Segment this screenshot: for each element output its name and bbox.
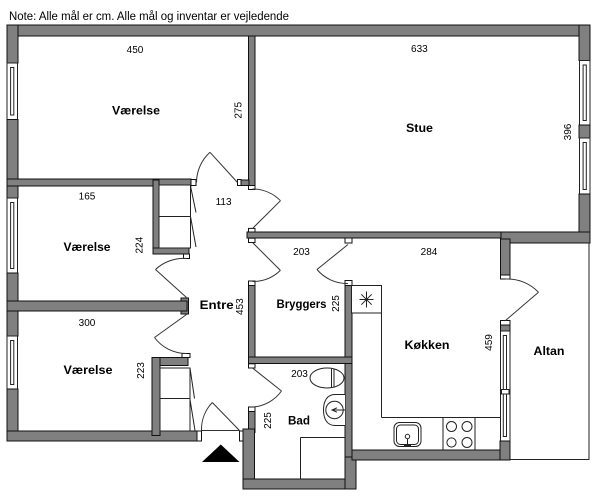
svg-text:225: 225	[331, 295, 342, 312]
svg-text:Entre: Entre	[200, 298, 234, 312]
svg-text:224: 224	[135, 236, 146, 253]
svg-text:Værelse: Værelse	[64, 363, 113, 377]
svg-text:Bad: Bad	[288, 413, 310, 427]
svg-text:275: 275	[234, 102, 245, 119]
svg-text:633: 633	[411, 44, 428, 55]
svg-text:Note: Alle mål er cm. Alle mål: Note: Alle mål er cm. Alle mål og invent…	[9, 9, 289, 23]
svg-text:300: 300	[79, 318, 96, 329]
svg-text:Værelse: Værelse	[64, 240, 111, 254]
svg-text:Stue: Stue	[406, 121, 433, 135]
svg-text:450: 450	[127, 45, 144, 56]
svg-text:Altan: Altan	[534, 344, 565, 358]
svg-text:225: 225	[263, 412, 274, 429]
svg-text:223: 223	[136, 362, 147, 379]
svg-text:Værelse: Værelse	[112, 103, 160, 117]
svg-text:459: 459	[484, 334, 495, 351]
svg-text:203: 203	[293, 247, 310, 258]
svg-text:453: 453	[235, 298, 246, 315]
svg-text:165: 165	[79, 192, 96, 203]
svg-text:Køkken: Køkken	[405, 338, 450, 352]
svg-text:Bryggers: Bryggers	[277, 297, 327, 311]
svg-text:396: 396	[563, 123, 574, 140]
svg-text:203: 203	[291, 369, 308, 380]
svg-text:284: 284	[421, 247, 438, 258]
svg-text:113: 113	[216, 197, 232, 208]
